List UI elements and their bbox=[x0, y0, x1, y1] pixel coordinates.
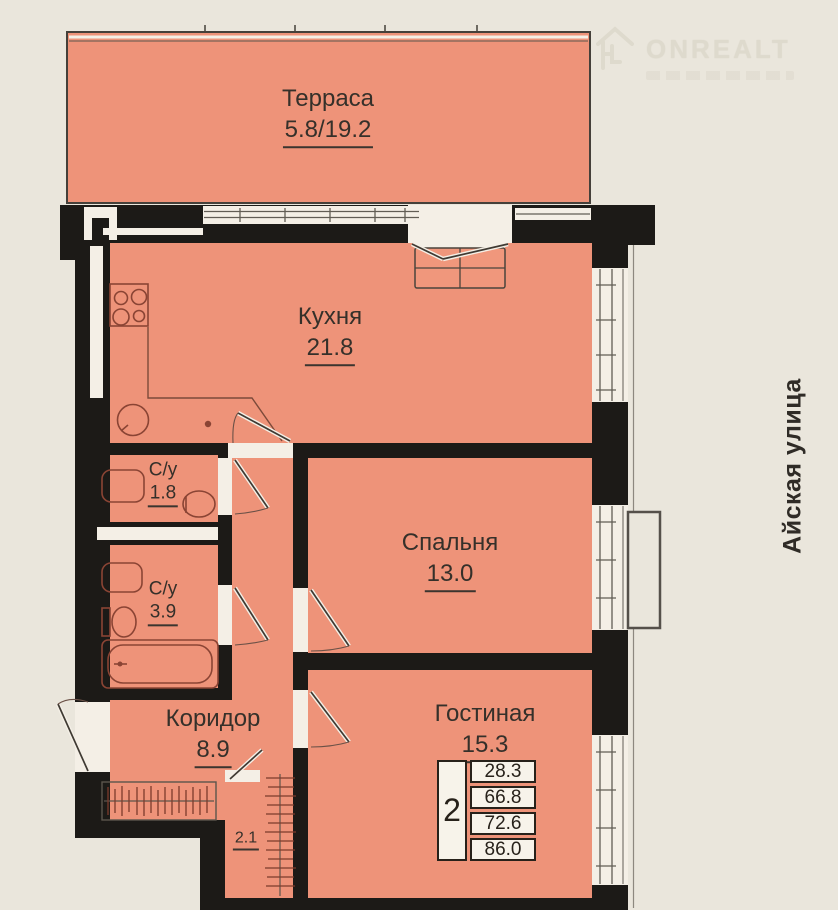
room-label-living: Гостиная 15.3 bbox=[435, 699, 536, 763]
area-value: 66.8 bbox=[470, 786, 536, 809]
area-value: 28.3 bbox=[470, 760, 536, 783]
room-label-bedroom: Спальня 13.0 bbox=[402, 528, 498, 592]
room-label-corridor: Коридор 8.9 bbox=[166, 704, 261, 768]
hallway-fill bbox=[232, 443, 293, 700]
shaft bbox=[97, 527, 218, 540]
duct bbox=[90, 246, 103, 398]
street-label: Айская улица bbox=[776, 334, 810, 599]
room-label-kitchen: Кухня 21.8 bbox=[298, 302, 362, 366]
room-label-terrace: Терраса 5.8/19.2 bbox=[282, 84, 374, 148]
area-value: 86.0 bbox=[470, 838, 536, 861]
room-label-wc2: С/у 3.9 bbox=[148, 577, 178, 626]
balcony-box bbox=[628, 512, 660, 628]
rooms-count: 2 bbox=[437, 760, 467, 861]
drain-dot bbox=[205, 421, 211, 427]
room-label-wc1: С/у 1.8 bbox=[148, 458, 178, 507]
floor-plan-page: ONREALT Терраса 5.8/19.2 Кухня 21.8 С/у … bbox=[0, 0, 838, 910]
terrace-door-opening bbox=[408, 205, 512, 243]
entrance-opening bbox=[75, 702, 110, 772]
area-value: 72.6 bbox=[470, 812, 536, 835]
room-label-closet: 2.1 bbox=[233, 830, 259, 851]
floor-plan-drawing bbox=[0, 0, 838, 910]
kitchen-window bbox=[203, 206, 420, 224]
area-summary-table: 2 28.3 66.8 72.6 86.0 bbox=[437, 760, 536, 861]
